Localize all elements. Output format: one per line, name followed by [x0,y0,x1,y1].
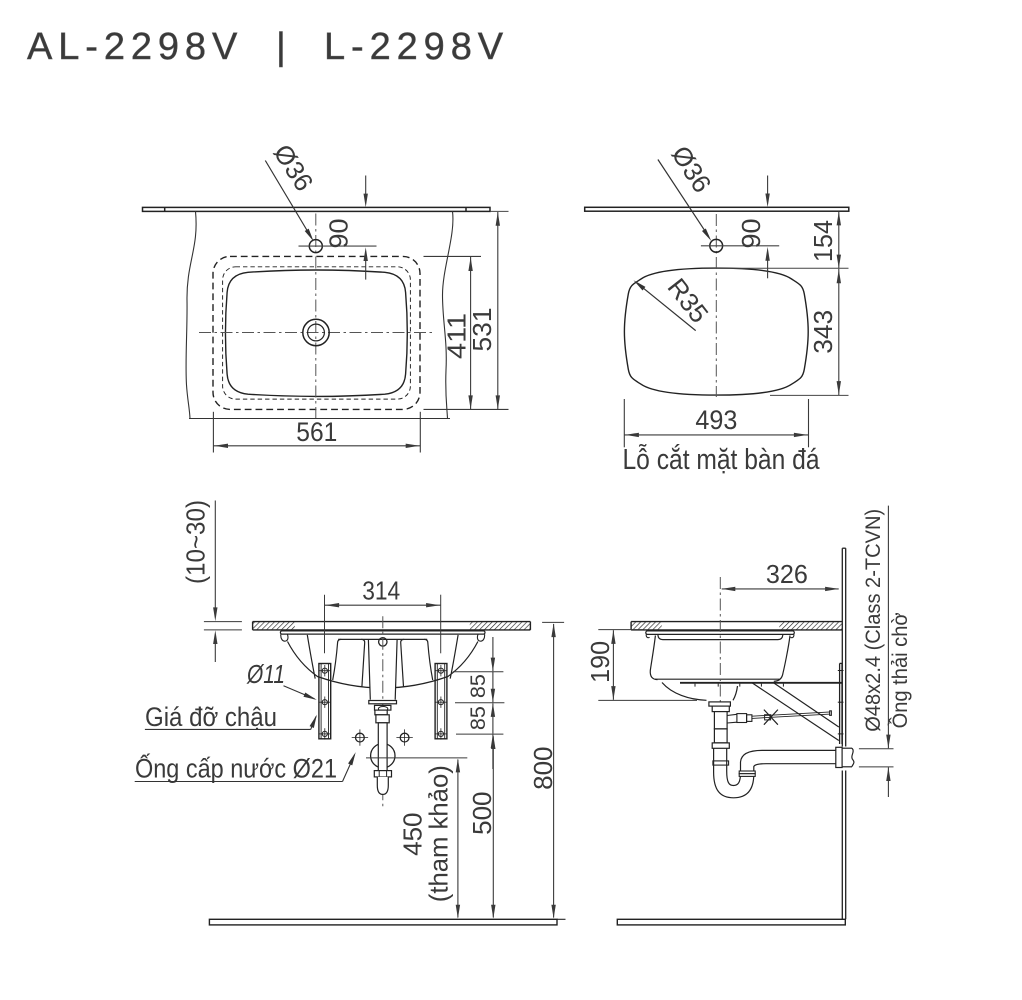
svg-text:190: 190 [585,641,615,683]
svg-text:|: | [276,26,292,68]
svg-text:154: 154 [808,220,838,262]
svg-text:500: 500 [467,792,497,835]
svg-text:Ø48x2.4 (Class 2-TCVN): Ø48x2.4 (Class 2-TCVN) [862,509,885,732]
svg-text:85: 85 [467,674,490,698]
svg-text:90: 90 [736,219,766,249]
svg-text:561: 561 [296,417,337,447]
svg-text:314: 314 [362,576,400,606]
svg-text:AL-2298V: AL-2298V [27,26,243,68]
svg-text:(10~30): (10~30) [180,500,210,584]
svg-text:Lỗ cắt mặt bàn đá: Lỗ cắt mặt bàn đá [623,443,821,476]
svg-text:343: 343 [808,310,838,354]
svg-text:Giá đỡ chậu: Giá đỡ chậu [145,702,277,732]
svg-text:493: 493 [695,405,737,435]
svg-text:326: 326 [766,559,808,589]
svg-text:Ống cấp nước Ø21: Ống cấp nước Ø21 [135,752,337,784]
svg-text:90: 90 [324,219,354,249]
svg-text:85: 85 [467,706,490,730]
svg-text:800: 800 [528,747,558,790]
svg-text:(tham khảo): (tham khảo) [423,765,453,902]
svg-text:Ồng thải chờ: Ồng thải chờ [888,612,912,728]
svg-text:Ø11: Ø11 [246,659,285,689]
svg-text:L-2298V: L-2298V [324,26,509,68]
svg-text:531: 531 [467,308,497,352]
